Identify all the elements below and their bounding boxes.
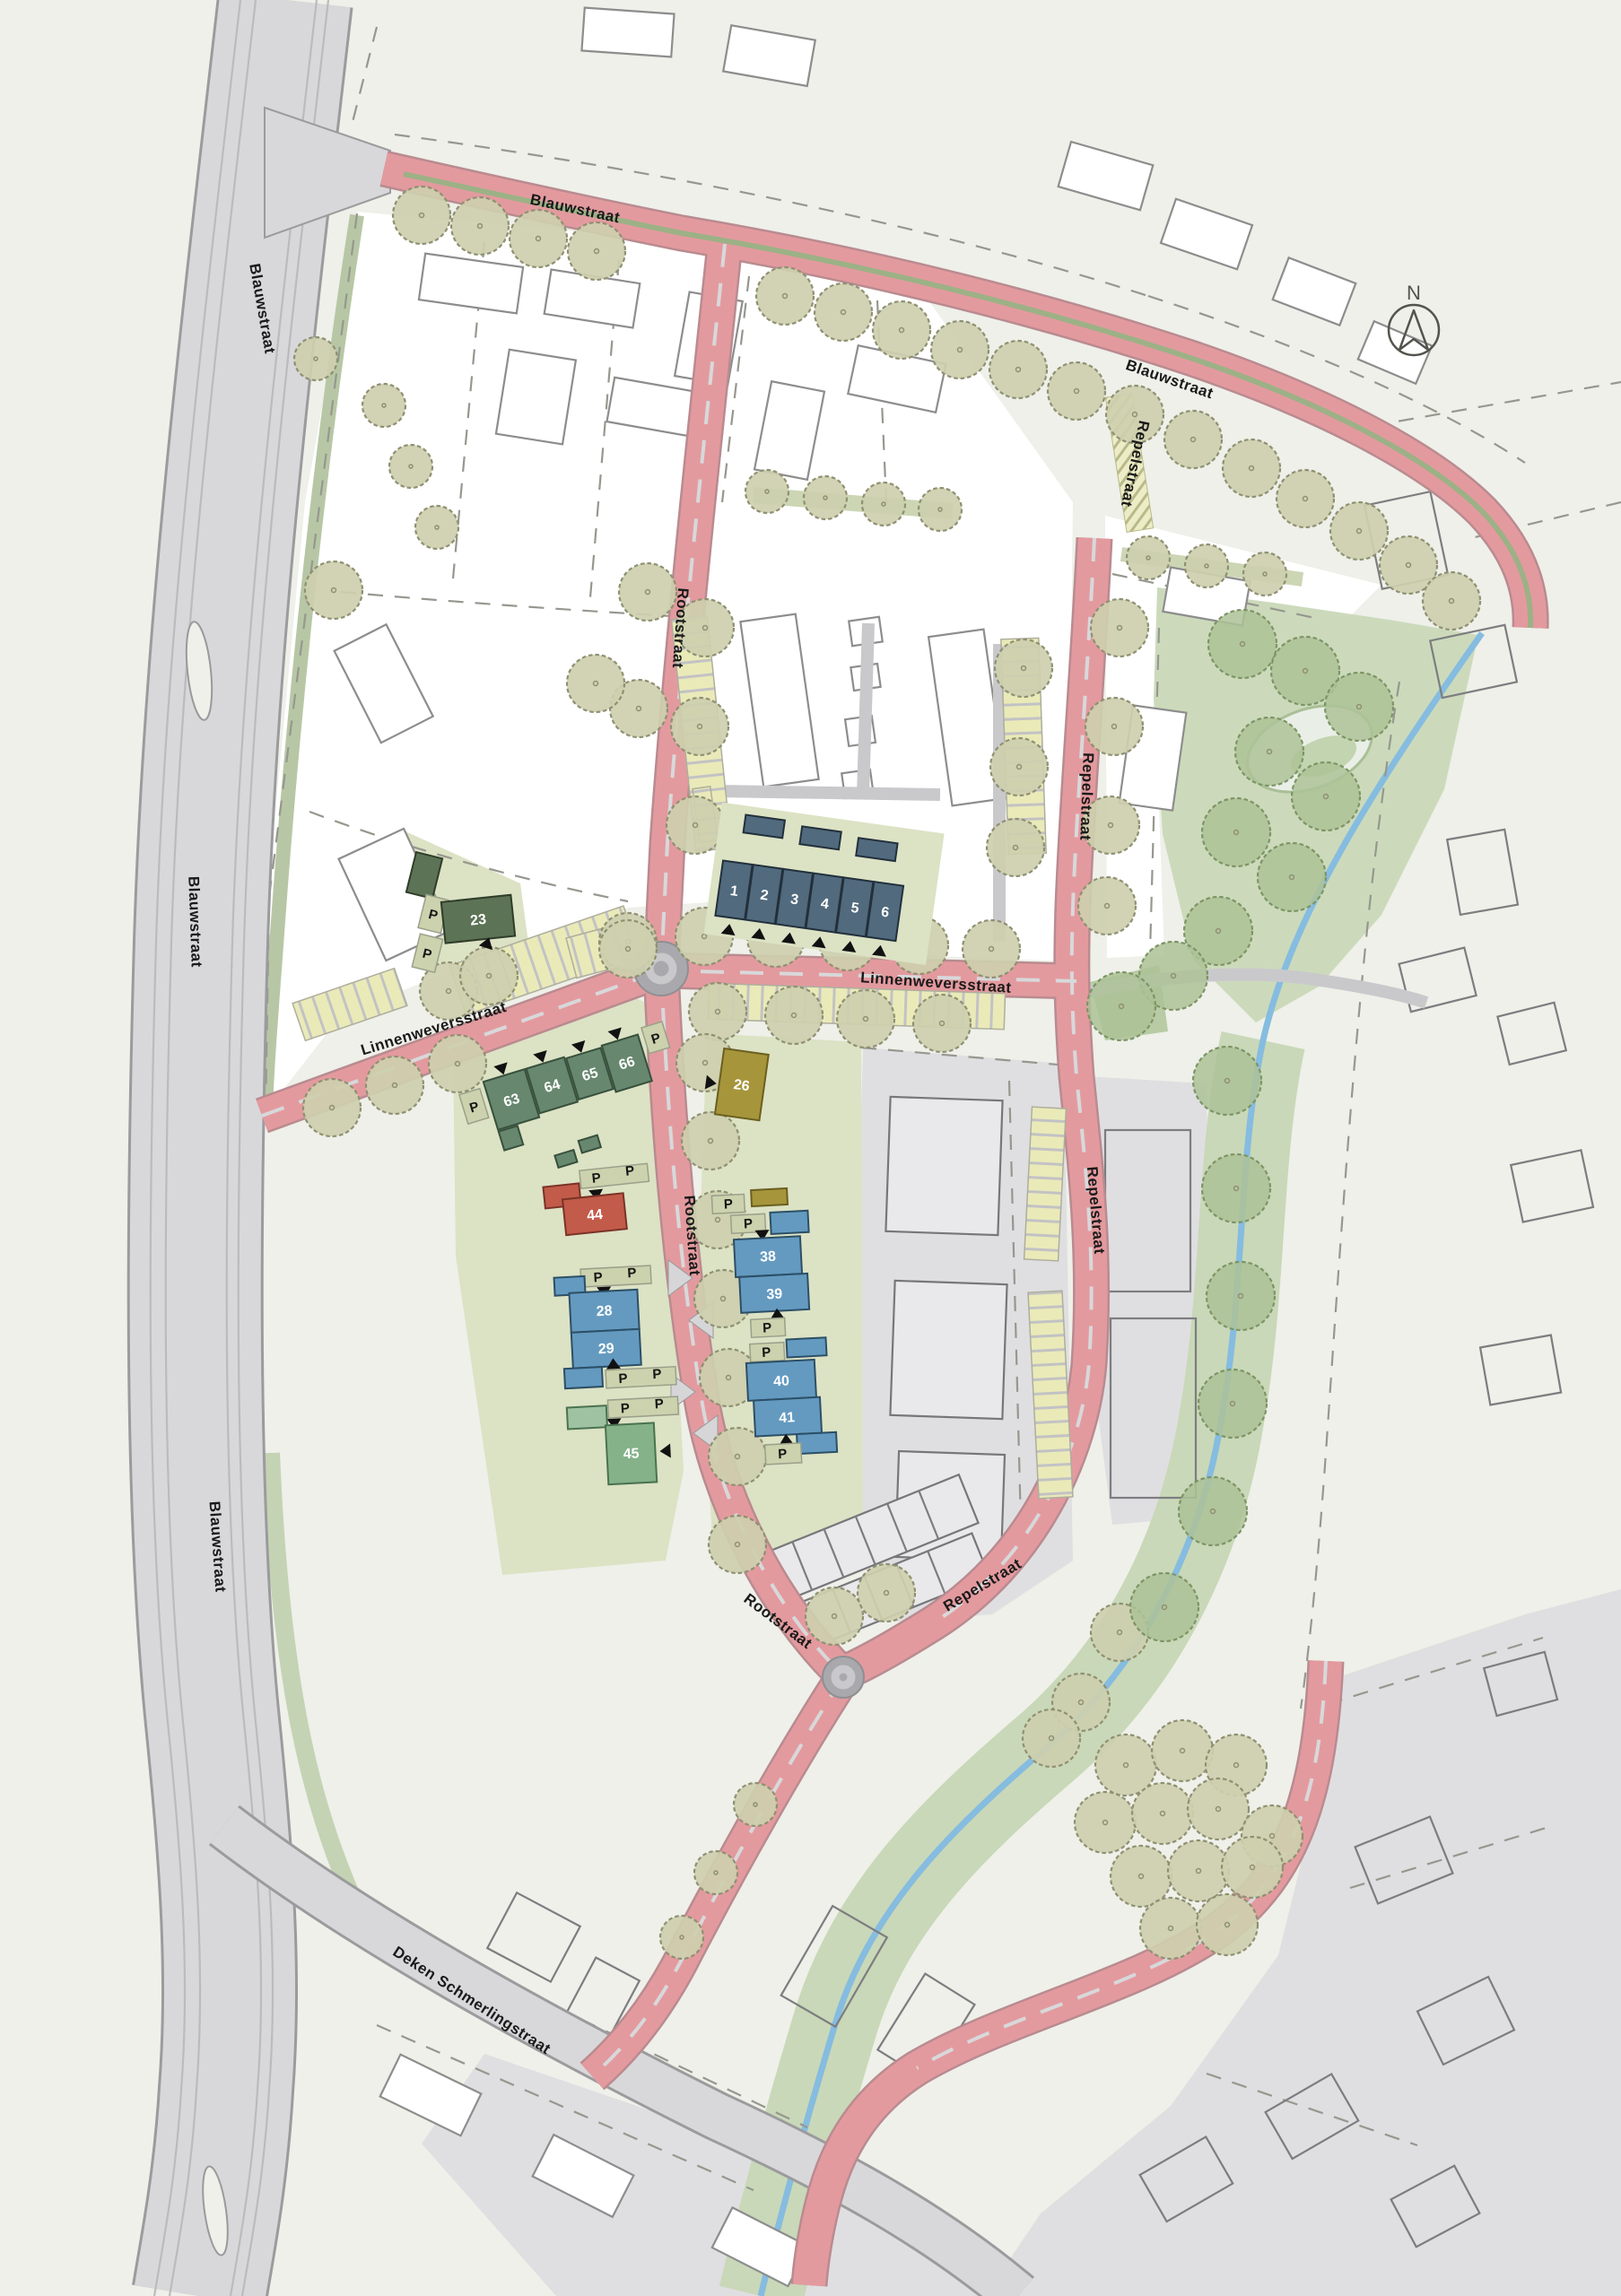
block-number: 41 — [779, 1410, 796, 1426]
parking-mark: P — [744, 1216, 754, 1232]
tree-icon — [1152, 1720, 1213, 1781]
street-label-blauwstraat: Blauwstraat — [185, 876, 205, 968]
tree-icon — [806, 1587, 863, 1645]
tree-icon — [963, 920, 1020, 978]
block-number: 26 — [733, 1077, 751, 1094]
tree-icon — [1085, 698, 1143, 755]
tree-icon — [931, 321, 989, 378]
tree-icon — [804, 476, 847, 519]
tree-icon — [1111, 1846, 1172, 1907]
block-number: 38 — [760, 1249, 777, 1265]
tree-icon — [837, 990, 894, 1048]
tree-icon — [873, 301, 930, 359]
tree-icon — [451, 197, 509, 255]
tree-icon — [1075, 1792, 1136, 1853]
tree-icon — [1197, 1894, 1258, 1955]
north-label: N — [1407, 282, 1421, 304]
tree-icon — [362, 384, 405, 427]
parking-mark: P — [723, 1196, 733, 1213]
tree-icon — [682, 1112, 739, 1170]
tree-icon — [1164, 411, 1222, 468]
tree-icon — [1198, 1370, 1267, 1438]
tree-icon — [1202, 1154, 1270, 1222]
tree-icon — [1292, 762, 1360, 831]
tree-icon — [1140, 1898, 1201, 1959]
tree-icon — [1330, 502, 1388, 560]
tree-icon — [568, 222, 625, 280]
tree-icon — [671, 698, 728, 755]
tree-icon — [1048, 362, 1105, 420]
tree-icon — [734, 1783, 777, 1826]
tree-icon — [1168, 1840, 1229, 1901]
tree-icon — [660, 1916, 703, 1959]
block-number: 29 — [597, 1341, 614, 1357]
tree-icon — [858, 1564, 915, 1622]
tree-icon — [305, 561, 362, 619]
tree-icon — [1188, 1779, 1249, 1839]
tree-icon — [599, 920, 657, 978]
tree-icon — [1208, 610, 1277, 678]
parking-mark: P — [762, 1345, 771, 1361]
tree-icon — [765, 987, 823, 1044]
parking-mark: P — [593, 1270, 603, 1286]
tree-icon — [1243, 552, 1286, 596]
block-number: 44 — [586, 1207, 604, 1224]
tree-icon — [415, 506, 458, 549]
tree-icon — [989, 341, 1047, 398]
tree-icon — [1325, 673, 1393, 741]
tree-icon — [1127, 536, 1170, 579]
tree-icon — [393, 187, 450, 244]
block-38-ext — [770, 1211, 808, 1234]
tree-icon — [694, 1851, 737, 1894]
street-label-repelstraat: Repelstraat — [1076, 752, 1096, 841]
tree-icon — [913, 995, 971, 1052]
block-number: 23 — [469, 912, 487, 929]
tree-icon — [689, 983, 746, 1040]
tree-icon — [919, 488, 962, 531]
tree-icon — [1130, 1573, 1198, 1641]
tree-icon — [1207, 1262, 1275, 1330]
parking-mark: P — [624, 1163, 635, 1179]
block-40-ext — [787, 1337, 827, 1357]
tree-icon — [1091, 599, 1148, 657]
block-number: 45 — [623, 1446, 640, 1462]
tree-icon — [1132, 1783, 1193, 1844]
parking-mark: P — [618, 1371, 628, 1387]
tree-icon — [709, 1516, 766, 1573]
tree-icon — [1223, 439, 1280, 497]
block-number: 40 — [773, 1373, 790, 1389]
site-plan-canvas: 1 2 3 4 5 6 P P 23 P P 63 64 65 66 P P 4… — [0, 0, 1621, 2296]
block-number: 28 — [596, 1303, 613, 1319]
tree-icon — [1222, 1837, 1283, 1898]
tree-icon — [995, 639, 1052, 697]
tree-icon — [862, 483, 905, 526]
parking-mark: P — [627, 1265, 637, 1282]
block-41-ext — [797, 1432, 837, 1454]
shed — [751, 1188, 788, 1206]
tree-icon — [366, 1057, 423, 1114]
tree-icon — [429, 1035, 486, 1092]
tree-icon — [1179, 1477, 1247, 1545]
parking-mark: P — [620, 1401, 630, 1417]
roundabout-south — [823, 1657, 864, 1698]
tree-icon — [510, 210, 567, 267]
tree-icon — [1277, 470, 1334, 527]
tree-icon — [294, 337, 337, 380]
tree-icon — [1078, 877, 1136, 935]
parking-mark: P — [763, 1320, 772, 1336]
tree-icon — [990, 738, 1048, 796]
tree-icon — [815, 283, 872, 341]
tree-icon — [1258, 843, 1326, 911]
tree-icon — [756, 267, 814, 325]
tree-icon — [619, 563, 676, 621]
parking-mark: P — [591, 1170, 602, 1187]
tree-icon — [1087, 972, 1155, 1040]
tree-icon — [1185, 544, 1228, 587]
tree-icon — [303, 1079, 361, 1136]
tree-icon — [460, 947, 518, 1004]
tree-icon — [1023, 1709, 1080, 1767]
tree-icon — [1095, 1735, 1156, 1796]
parking-mark: P — [654, 1396, 664, 1413]
tree-icon — [1202, 798, 1270, 866]
tree-icon — [389, 445, 432, 488]
tree-icon — [745, 470, 789, 513]
tree-icon — [1193, 1047, 1261, 1115]
site-plan-map: 1 2 3 4 5 6 P P 23 P P 63 64 65 66 P P 4… — [0, 0, 1621, 2296]
tree-icon — [1423, 572, 1480, 630]
tree-icon — [667, 796, 724, 854]
parking-mark: P — [652, 1367, 662, 1383]
tree-icon — [567, 655, 624, 712]
block-number: 39 — [766, 1286, 783, 1302]
block-29-ext — [564, 1367, 603, 1388]
tree-icon — [1235, 717, 1303, 786]
parking-mark: P — [778, 1447, 788, 1463]
tree-icon — [987, 819, 1044, 876]
block-45-ext — [567, 1405, 607, 1429]
